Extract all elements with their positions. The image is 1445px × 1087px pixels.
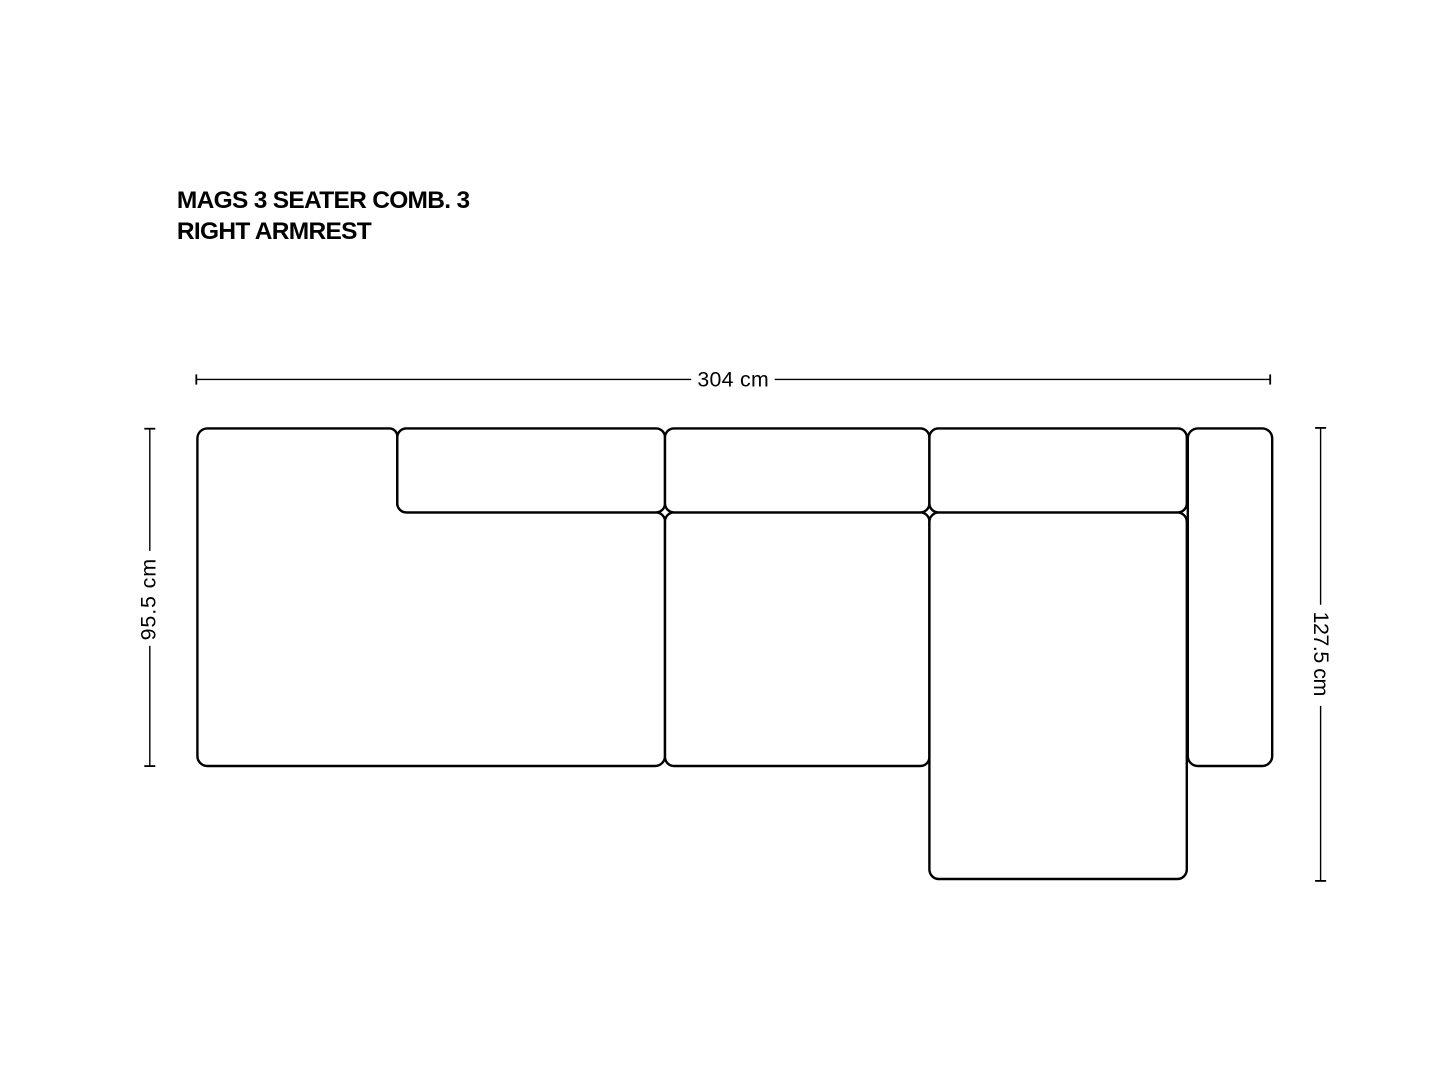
svg-text:304 cm: 304 cm bbox=[697, 368, 769, 392]
svg-text:127.5 cm: 127.5 cm bbox=[1309, 611, 1333, 695]
svg-text:MAGS 3 SEATER COMB. 3: MAGS 3 SEATER COMB. 3 bbox=[177, 187, 470, 214]
svg-text:RIGHT ARMREST: RIGHT ARMREST bbox=[177, 218, 372, 245]
svg-text:95.5 cm: 95.5 cm bbox=[136, 558, 160, 640]
